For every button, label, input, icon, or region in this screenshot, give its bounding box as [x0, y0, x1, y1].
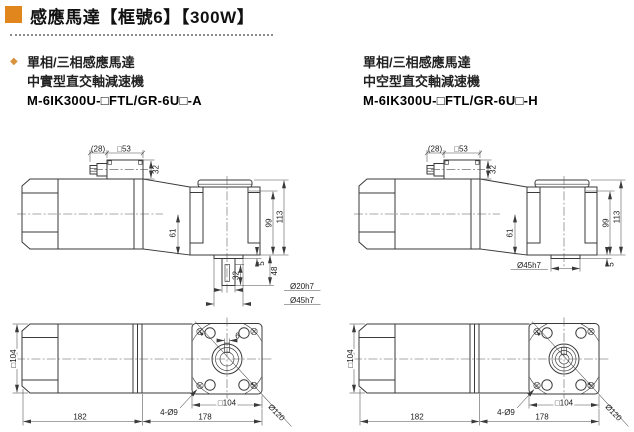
- motor-body: [17, 179, 190, 255]
- dim-label-center_face: 61: [169, 228, 178, 237]
- side-view: (28)□53326199113Ø45h75: [354, 145, 626, 272]
- dim-label-box: □53: [454, 145, 468, 154]
- dim-label-square: □104: [555, 399, 574, 408]
- gearbox-type-line: 中空型直交軸減速機: [363, 72, 538, 91]
- dim-label-gear_len: 178: [198, 413, 212, 422]
- motor-body: [359, 324, 529, 393]
- diamond-bullet-icon: ◆: [10, 57, 18, 67]
- dim-label-shaft_total: 48: [270, 266, 279, 275]
- dim-label-holes: 4-Ø9: [497, 408, 515, 417]
- model-number: M-6IK300U-□FTL/GR-6U□-H: [363, 91, 538, 111]
- dim-label-boss_dia: Ø45h7: [290, 296, 315, 305]
- dim-label-holes: 4-Ø9: [160, 408, 178, 417]
- page-title: 感應馬達【框號6】【300W】: [30, 3, 254, 28]
- motor-type-line: 單相/三相感應馬達: [27, 53, 202, 72]
- dim-label-boss_dia: Ø45h7: [517, 261, 542, 270]
- dim-label-shaft_dia: Ø20h7: [290, 282, 315, 291]
- dim-label-h_inner: 99: [602, 218, 611, 227]
- dim-label-center_face: 61: [506, 228, 515, 237]
- mounting-flange: [16, 318, 272, 402]
- dim-label-boss_h: 5: [257, 261, 266, 266]
- dim-label-shaft_len: 32: [232, 271, 241, 280]
- dim-label-boss_h: 5: [607, 262, 616, 267]
- bottom-view: Ø120□1041821784-Ø9□1046: [9, 318, 291, 427]
- terminal-box: [427, 160, 485, 179]
- dim-label-motor_len: 182: [410, 413, 424, 422]
- drawing-solid-shaft-type: (28)□5332619911354832Ø20h7Ø45h7Ø120□1041…: [8, 137, 326, 432]
- dim-label-gland: (28): [428, 145, 443, 154]
- left-column-header: 單相/三相感應馬達 中實型直交軸減速機 M-6IK300U-□FTL/GR-6U…: [27, 53, 202, 111]
- dim-label-circle: Ø120: [603, 402, 623, 423]
- model-number: M-6IK300U-□FTL/GR-6U□-A: [27, 91, 202, 111]
- dim-label-circle: Ø120: [266, 402, 286, 423]
- dim-label-box_h: 32: [152, 165, 161, 174]
- gearbox-type-line: 中實型直交軸減速機: [27, 72, 202, 91]
- motor-type-line: 單相/三相感應馬達: [363, 53, 538, 72]
- motor-body: [22, 324, 192, 393]
- dim-label-gland: (28): [91, 145, 106, 154]
- dotted-divider: [10, 34, 273, 36]
- side-view: (28)□5332619911354832Ø20h7Ø45h7: [17, 145, 321, 307]
- terminal-box: [90, 160, 148, 179]
- drawing-hollow-shaft-type: (28)□53326199113Ø45h75Ø120□1041821784-Ø9…: [345, 137, 634, 432]
- dim-label-h_total: 113: [613, 210, 622, 223]
- bottom-view: Ø120□1041821784-Ø9□104: [346, 318, 628, 427]
- right-column-header: 單相/三相感應馬達 中空型直交軸減速機 M-6IK300U-□FTL/GR-6U…: [363, 53, 538, 111]
- dim-label-gear_len: 178: [535, 413, 549, 422]
- dim-label-box_h: 32: [489, 165, 498, 174]
- dim-label-h_total: 113: [276, 210, 285, 223]
- section-marker-icon: [5, 6, 22, 23]
- dim-label-square: □104: [218, 399, 237, 408]
- motor-body: [354, 179, 527, 255]
- dim-label-width: □104: [346, 349, 355, 368]
- dim-label-motor_len: 182: [73, 413, 87, 422]
- dim-label-key: 6: [235, 332, 240, 341]
- mounting-flange: [353, 318, 609, 402]
- dim-label-h_inner: 99: [265, 218, 274, 227]
- dim-label-width: □104: [9, 349, 18, 368]
- gearbox: [527, 176, 597, 268]
- dim-label-box: □53: [117, 145, 131, 154]
- catalog-page: 感應馬達【框號6】【300W】 ◆ 單相/三相感應馬達 中實型直交軸減速機 M-…: [0, 0, 634, 432]
